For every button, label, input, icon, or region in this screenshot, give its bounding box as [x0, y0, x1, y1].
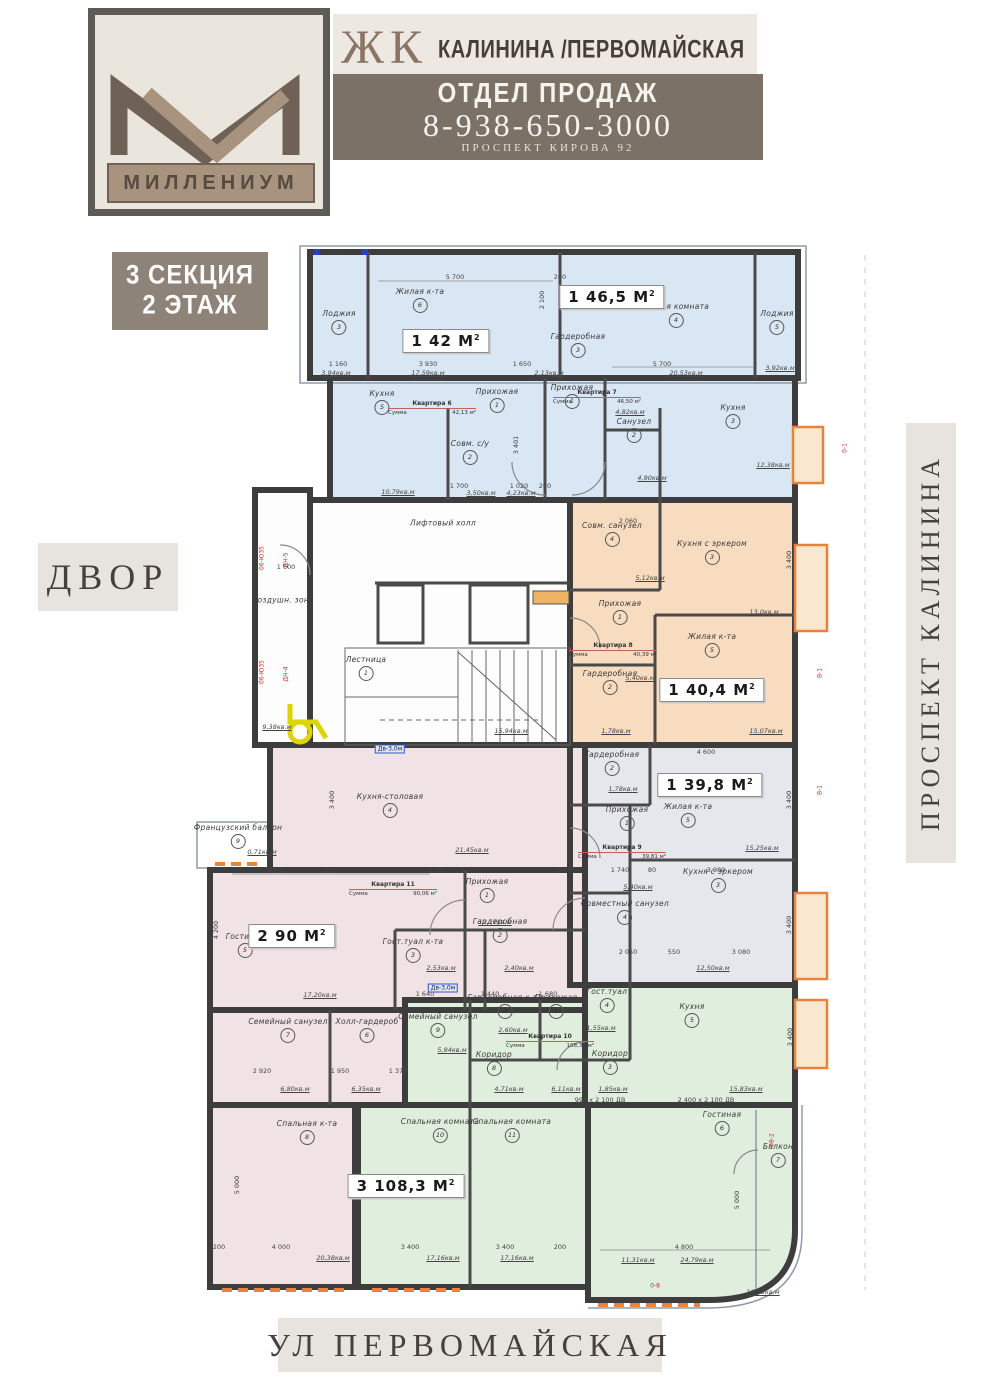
floor-plan-svg [0, 0, 1000, 1400]
area-badge-kv11: 2 90 М2 [248, 924, 335, 948]
apartment-info-kv11: Квартира 11 Сумма90,06 м² [349, 881, 437, 897]
area-badge-kv9: 1 39,8 М2 [657, 773, 762, 797]
area-badge-kv8: 1 40,4 М2 [659, 678, 764, 702]
apartment-info-kv9: Квартира 9 Сумма39,81 м² [578, 844, 666, 860]
apartment-info-kv10: Квартира 10 Сумма108,30 м² [506, 1033, 594, 1049]
area-badge-kv6: 1 42 М2 [402, 329, 489, 353]
flyer-page: МИЛЛЕНИУМ ЖК КАЛИНИНА /ПЕРВОМАЙСКАЯ ОТДЕ… [0, 0, 1000, 1400]
area-badge-kv10: 3 108,3 М2 [348, 1174, 465, 1198]
apartment-info-kv8: Квартира 8 Сумма40,39 м² [569, 642, 657, 658]
apartment-info-kv7: Квартира 7 Сумма46,50 м² [553, 389, 641, 405]
apartment-info-kv6: Квартира 6 Сумма42,13 м² [388, 400, 476, 416]
area-badge-kv7: 1 46,5 М2 [559, 285, 664, 309]
